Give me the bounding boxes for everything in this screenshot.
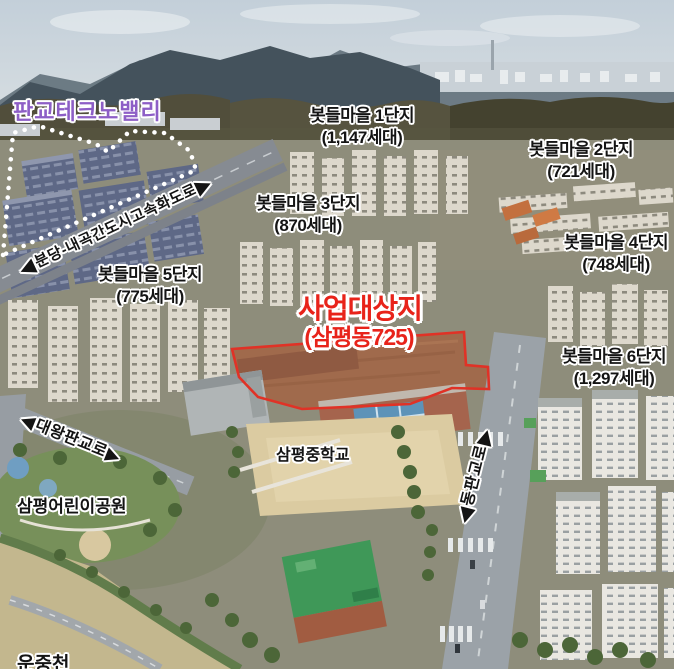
village-1-households: (1,147세대) bbox=[310, 127, 414, 149]
project-site-subtitle-text: (삼평동725) bbox=[304, 324, 413, 350]
village-3-name: 봇들마을 3단지 bbox=[256, 193, 360, 215]
village-2-households: (721세대) bbox=[529, 161, 633, 183]
village-6-label: 봇들마을 6단지 (1,297세대) bbox=[562, 346, 666, 390]
village-5-name: 봇들마을 5단지 bbox=[98, 264, 202, 286]
village-5-label: 봇들마을 5단지 (775세대) bbox=[98, 264, 202, 308]
techno-valley-label: 판교테크노밸리 bbox=[13, 94, 162, 126]
village-3-label: 봇들마을 3단지 (870세대) bbox=[256, 193, 360, 237]
middle-school-name: 삼평중학교 bbox=[276, 447, 350, 464]
children-park-label: 삼평어린이공원 bbox=[17, 492, 126, 517]
village-4-name: 봇들마을 4단지 bbox=[564, 232, 668, 254]
village-6-households: (1,297세대) bbox=[562, 368, 666, 390]
project-site-subtitle: (삼평동725) bbox=[304, 318, 413, 352]
green-roof-building bbox=[282, 540, 387, 644]
village-2-label: 봇들마을 2단지 (721세대) bbox=[529, 139, 633, 183]
techno-valley-name: 판교테크노밸리 bbox=[13, 99, 162, 124]
village-1-label: 봇들마을 1단지 (1,147세대) bbox=[310, 105, 414, 149]
village-1-name: 봇들마을 1단지 bbox=[310, 105, 414, 127]
distant-tower bbox=[491, 40, 494, 70]
middle-school-label: 삼평중학교 bbox=[276, 441, 350, 465]
stream-name: 운중천 bbox=[17, 654, 69, 669]
children-park-name: 삼평어린이공원 bbox=[17, 497, 126, 516]
village-6-name: 봇들마을 6단지 bbox=[562, 346, 666, 368]
village-2-name: 봇들마을 2단지 bbox=[529, 139, 633, 161]
stream-label: 운중천 bbox=[17, 649, 69, 669]
school-field bbox=[240, 414, 468, 516]
village-4-label: 봇들마을 4단지 (748세대) bbox=[564, 232, 668, 276]
annotated-aerial-photo: 판교테크노밸리 ◀분당-내곡간도시고속화도로▶ 봇들마을 1단지 (1,147세… bbox=[0, 0, 674, 669]
village-4-households: (748세대) bbox=[564, 254, 668, 276]
village-3-households: (870세대) bbox=[256, 215, 360, 237]
village-5-households: (775세대) bbox=[98, 286, 202, 308]
